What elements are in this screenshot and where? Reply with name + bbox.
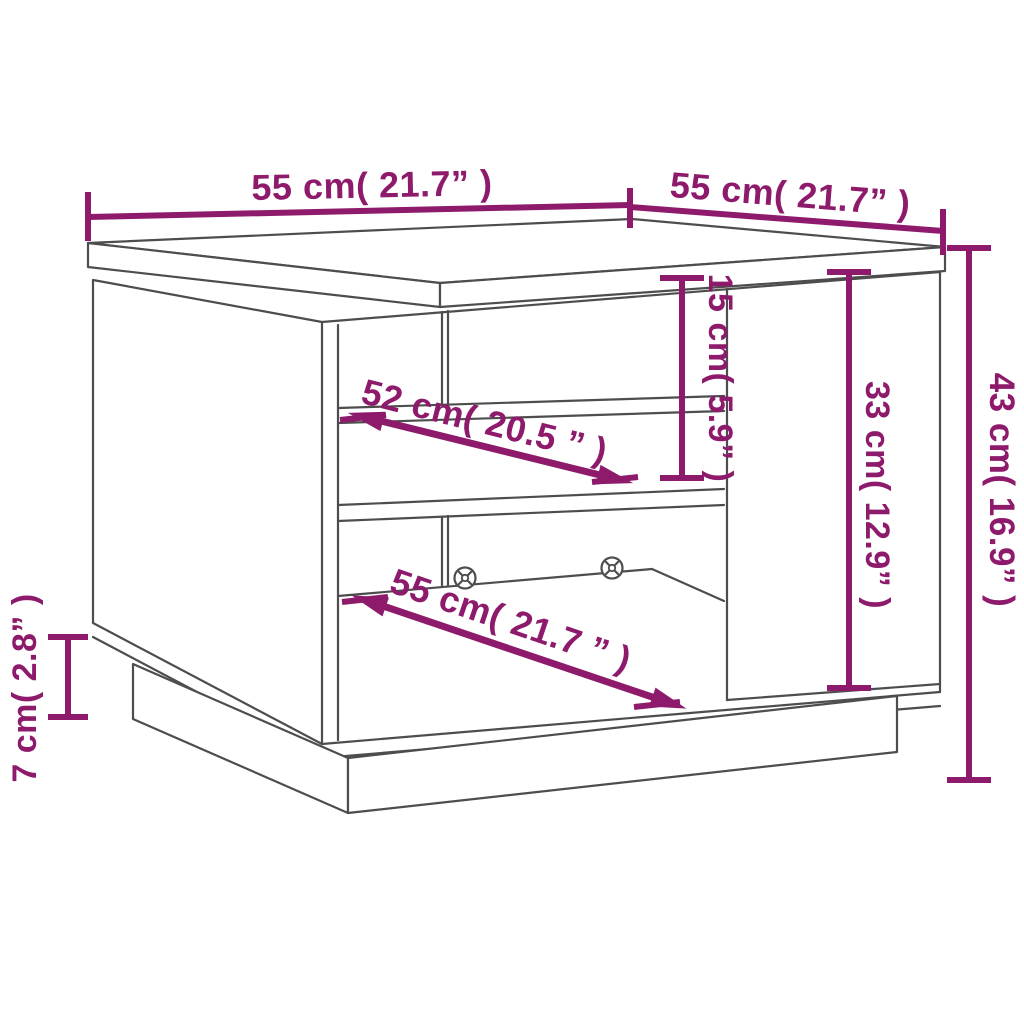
dim-overall-height: 43 cm( 16.9” )	[947, 248, 1021, 780]
table-drawing	[88, 219, 945, 813]
lower-shelf	[338, 489, 724, 521]
cabinet-body	[93, 272, 940, 758]
dim-shelf-opening-height-label: 15 cm( 5.9” )	[701, 274, 739, 483]
dim-shelf-opening-height: 15 cm( 5.9” )	[660, 274, 739, 483]
dim-top-width-label: 55 cm( 21.7” )	[251, 162, 493, 208]
floor-corner-line	[652, 569, 724, 601]
dim-plinth-height-label: 7 cm( 2.8” )	[6, 593, 44, 782]
lower-shelf-top-edge	[338, 489, 724, 505]
divider-panel	[442, 311, 448, 587]
dim-door-height: 33 cm( 12.9” )	[827, 272, 896, 688]
dim-shelf-depth: 52 cm( 20.5 ” )	[340, 371, 638, 482]
plinth-front-face	[348, 696, 897, 813]
left-side-panel	[93, 280, 322, 744]
tabletop	[88, 219, 945, 307]
dim-base-depth: 55 cm( 21.7 ” )	[342, 560, 680, 707]
screw-right-icon	[602, 558, 623, 579]
dim-door-height-label: 33 cm( 12.9” )	[858, 381, 896, 609]
door-panel	[727, 289, 940, 700]
dim-plinth-height: 7 cm( 2.8” )	[6, 593, 88, 782]
diagram-canvas: 55 cm( 21.7” ) 55 cm( 21.7” ) 43 cm( 16.…	[0, 0, 1024, 1024]
dim-overall-height-label: 43 cm( 16.9” )	[982, 373, 1021, 608]
lower-shelf-front-edge	[338, 505, 724, 521]
dimension-diagram: 55 cm( 21.7” ) 55 cm( 21.7” ) 43 cm( 16.…	[0, 0, 1024, 1024]
